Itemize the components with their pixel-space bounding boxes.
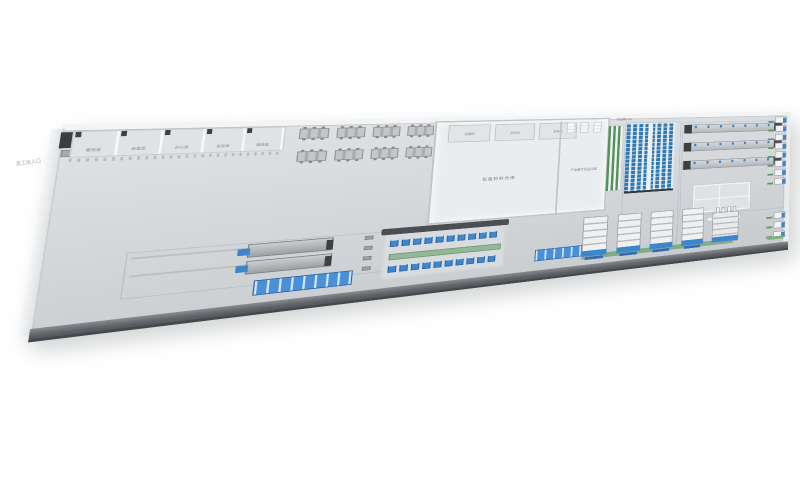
line-carriers (694, 158, 774, 165)
desk-cluster (299, 128, 330, 139)
asrs-blue-racking (624, 123, 676, 192)
stack (722, 207, 726, 213)
display-rack (567, 122, 576, 133)
wall-machine (775, 151, 786, 158)
desk-cluster (296, 151, 327, 162)
right-wall-machine-row-lower (773, 211, 785, 238)
utility-room-compressor: 空压间 (494, 123, 535, 141)
conveyor-post (363, 256, 372, 261)
entrance-label: 员工出入口 (16, 157, 42, 167)
stack (716, 207, 720, 213)
stack (727, 206, 731, 212)
wall-machine (774, 211, 786, 219)
production-line (682, 156, 781, 170)
wall-machine (774, 169, 786, 176)
stack-row (716, 206, 738, 214)
desk-cluster (336, 127, 366, 138)
green-shelving (605, 125, 624, 192)
workstation (446, 234, 454, 241)
stack (733, 206, 737, 212)
wall-machine (774, 221, 786, 229)
workstation (399, 264, 408, 272)
wall-machine (775, 134, 786, 141)
workstation (411, 263, 420, 271)
workstation (401, 238, 410, 246)
line-carriers (694, 141, 774, 147)
desk-cluster (334, 149, 364, 160)
office-room: 会议室 (203, 128, 246, 152)
wall-machine (775, 142, 786, 149)
workstation (457, 233, 465, 240)
office-room: 接待室 (244, 127, 285, 151)
display-rack (580, 122, 589, 133)
workstation (387, 265, 396, 273)
wall-machine (774, 177, 786, 184)
workstation (477, 256, 485, 263)
wall-machine (775, 160, 787, 167)
workstation (422, 261, 431, 269)
right-wall-machine-row-upper (774, 116, 787, 184)
office-room: 更衣室 (71, 131, 121, 157)
workstation (489, 231, 497, 238)
coating-unit (649, 210, 673, 250)
display-rack (593, 122, 602, 133)
workstation (390, 239, 399, 247)
workstation (444, 259, 453, 267)
workstation (479, 232, 487, 239)
showroom-meeting-room: 产品展厅及会议室 (557, 119, 610, 214)
desk-cluster (405, 147, 432, 158)
factory-layout-scene: 更衣室 休息室 办公室 会议室 接待室 休息区 空调间 空压间 配电间 包装材料… (0, 0, 800, 480)
office-room: 休息室 (117, 130, 164, 155)
workstation (424, 236, 433, 244)
line-carriers (695, 124, 774, 129)
workstation (455, 258, 463, 266)
desk-cluster (370, 148, 398, 159)
desk-cluster (372, 126, 400, 136)
partition-wall (694, 195, 748, 201)
production-line-area (682, 122, 784, 187)
workstation (487, 255, 495, 262)
conveyor-post (365, 235, 374, 240)
wall-machine (775, 116, 786, 123)
wide-unit-with-stacks (712, 211, 739, 244)
utility-room-hvac: 空调间 (448, 124, 491, 142)
workstation (435, 235, 444, 243)
production-line (683, 139, 782, 152)
coating-unit (681, 207, 704, 246)
workstation (433, 260, 442, 268)
coating-unit (616, 213, 642, 254)
central-building: 空调间 空压间 配电间 包装材料仓库 产品展厅及会议室 (427, 118, 610, 225)
floor-plane: 更衣室 休息室 办公室 会议室 接待室 休息区 空调间 空压间 配电间 包装材料… (28, 113, 790, 343)
workstation (466, 257, 474, 265)
workstation (413, 237, 422, 245)
coating-unit (581, 216, 608, 258)
workstation (468, 233, 476, 240)
wall-machine (775, 125, 786, 132)
conveyor-post (364, 246, 373, 251)
finished-goods-label: 成品库入口 (616, 117, 632, 121)
office-desk-area (295, 126, 437, 169)
warehouse-hall-label: 包装材料仓库 (438, 173, 555, 185)
production-line (684, 122, 783, 133)
showroom-label: 产品展厅及会议室 (561, 166, 606, 172)
showroom-rack-row (566, 122, 606, 135)
desk-cluster (407, 126, 434, 136)
office-room: 办公室 (161, 129, 206, 154)
